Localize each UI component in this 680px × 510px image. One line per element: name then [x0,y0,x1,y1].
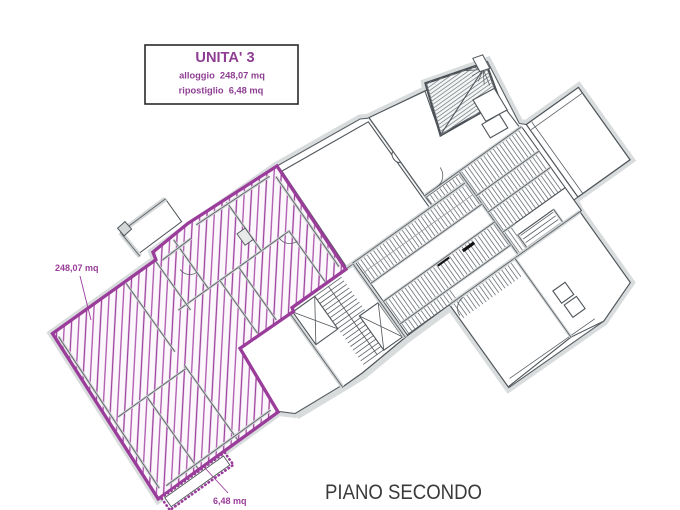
svg-text:UNITA' 3: UNITA' 3 [195,50,254,66]
svg-text:ripostiglio 6,48 mq: ripostiglio 6,48 mq [179,86,264,96]
svg-text:PIANO SECONDO: PIANO SECONDO [325,480,482,504]
svg-text:248,07 mq: 248,07 mq [55,263,99,273]
svg-text:alloggio 248,07 mq: alloggio 248,07 mq [179,71,265,81]
svg-text:6,48 mq: 6,48 mq [213,496,247,506]
